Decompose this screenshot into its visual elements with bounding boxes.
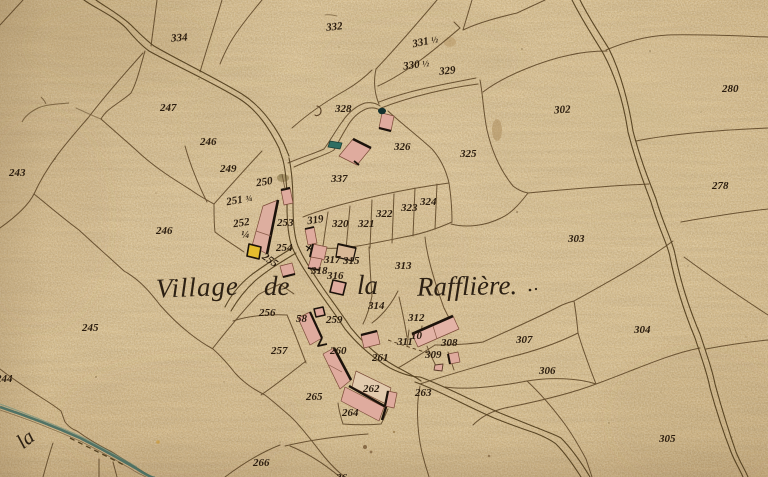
svg-text:la: la <box>357 270 378 300</box>
svg-text:243: 243 <box>8 167 26 179</box>
svg-text:246: 246 <box>155 225 173 237</box>
svg-text:326: 326 <box>393 141 411 153</box>
svg-text:Rafflière.: Rafflière. <box>416 270 518 302</box>
svg-text:260: 260 <box>329 345 347 357</box>
svg-text:253: 253 <box>276 217 294 229</box>
svg-text:316: 316 <box>326 270 344 282</box>
svg-text:244: 244 <box>0 373 13 385</box>
svg-text:307: 307 <box>515 334 533 346</box>
svg-text:328: 328 <box>334 103 352 115</box>
svg-text:319: 319 <box>305 213 324 227</box>
svg-text:323: 323 <box>400 202 418 214</box>
svg-text:¼: ¼ <box>241 229 249 241</box>
svg-text:247: 247 <box>159 102 177 114</box>
svg-text:257: 257 <box>270 345 288 357</box>
svg-text:304: 304 <box>633 324 651 336</box>
svg-text:278: 278 <box>711 180 729 192</box>
svg-text:312: 312 <box>407 312 425 324</box>
svg-text:320: 320 <box>331 218 349 230</box>
svg-text:322: 322 <box>375 208 393 220</box>
svg-text:262: 262 <box>362 383 380 395</box>
svg-text:302: 302 <box>553 104 572 117</box>
svg-text:263: 263 <box>414 387 432 399</box>
svg-text:325: 325 <box>459 148 477 160</box>
svg-text:309: 309 <box>424 349 442 361</box>
svg-text:313: 313 <box>394 260 412 272</box>
svg-text:250: 250 <box>254 175 273 189</box>
svg-text:254: 254 <box>275 242 293 254</box>
svg-text:314: 314 <box>367 300 385 312</box>
svg-text:337: 337 <box>330 173 348 185</box>
svg-text:261: 261 <box>371 352 389 364</box>
svg-text:265: 265 <box>305 391 323 403</box>
svg-text:305: 305 <box>658 433 676 445</box>
svg-text:26: 26 <box>335 472 348 477</box>
svg-text:306: 306 <box>538 365 556 377</box>
svg-text:259: 259 <box>325 314 343 326</box>
svg-text:Village: Village <box>155 271 239 304</box>
svg-text:315: 315 <box>342 255 360 267</box>
svg-text:58: 58 <box>296 313 308 325</box>
svg-text:308: 308 <box>440 337 458 349</box>
svg-text:249: 249 <box>219 163 237 175</box>
svg-text:10: 10 <box>411 330 423 342</box>
svg-text:256: 256 <box>258 307 276 319</box>
svg-text:245: 245 <box>81 322 99 334</box>
svg-text:de: de <box>264 271 290 301</box>
svg-text:332: 332 <box>325 20 344 34</box>
svg-text:334: 334 <box>170 31 189 44</box>
svg-text:266: 266 <box>252 457 270 469</box>
svg-text:303: 303 <box>567 233 585 245</box>
svg-text:264: 264 <box>341 407 359 419</box>
svg-text:321: 321 <box>357 218 375 230</box>
svg-text:246: 246 <box>199 136 217 148</box>
svg-text:324: 324 <box>419 196 437 208</box>
svg-text:280: 280 <box>721 83 739 95</box>
svg-text:318: 318 <box>310 265 328 277</box>
svg-text:329: 329 <box>438 64 457 78</box>
